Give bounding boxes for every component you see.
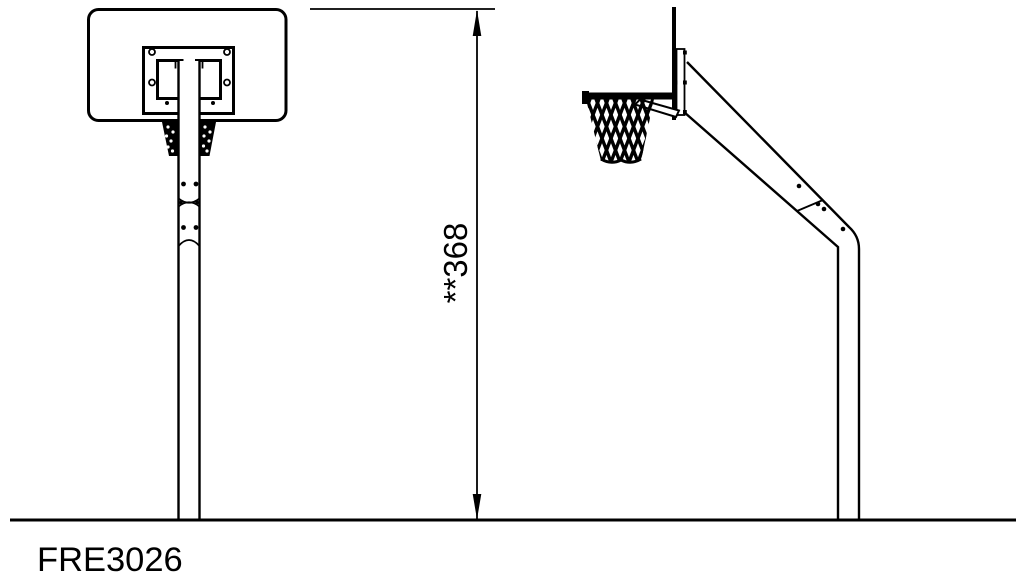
arrow-down-icon: [473, 494, 482, 520]
net-strand: [566, 99, 590, 162]
technical-drawing: **368: [0, 0, 1024, 585]
net-strand: [560, 99, 584, 162]
bolt-hole: [224, 80, 230, 86]
bolt-hole: [149, 49, 155, 55]
clamp-bolt: [194, 225, 199, 230]
net-front-left: [162, 122, 179, 156]
clamp-bolt: [194, 182, 199, 187]
pole-bolt: [822, 207, 827, 212]
net-bottom-edge: [601, 159, 641, 162]
front-view: [89, 10, 287, 521]
dimension-label: **368: [437, 223, 474, 304]
bracket-bolt: [683, 110, 687, 114]
pole-bolt: [816, 202, 821, 207]
pole-bolt: [841, 227, 846, 232]
bracket-bolt: [683, 51, 687, 55]
bolt-hole: [149, 80, 155, 86]
pole-front-body: [179, 61, 200, 520]
dimension-annotation: **368: [310, 9, 495, 520]
bracket-bolt: [683, 81, 687, 85]
plate-bolt: [165, 101, 169, 105]
pole-bolt: [797, 184, 802, 189]
side-view: [560, 7, 859, 520]
clamp-bolt: [195, 201, 199, 205]
clamp-bolt: [181, 225, 186, 230]
bracket-bolt: [674, 81, 678, 85]
rim-side: [583, 93, 674, 100]
product-code: FRE3026: [37, 541, 183, 579]
plate-bolt: [211, 101, 215, 105]
arrow-up-icon: [473, 10, 482, 36]
clamp-bolt: [181, 182, 186, 187]
bolt-hole: [224, 49, 230, 55]
clamp-bolt: [179, 201, 183, 205]
pole-side-body: [684, 62, 859, 520]
